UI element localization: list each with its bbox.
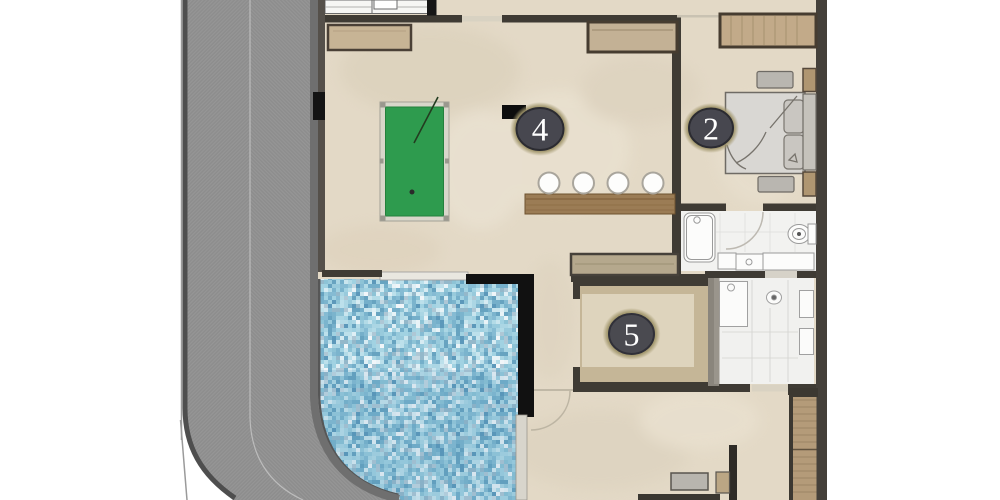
svg-text:5: 5 xyxy=(624,317,640,353)
svg-text:4: 4 xyxy=(532,113,549,149)
svg-text:2: 2 xyxy=(703,111,719,147)
